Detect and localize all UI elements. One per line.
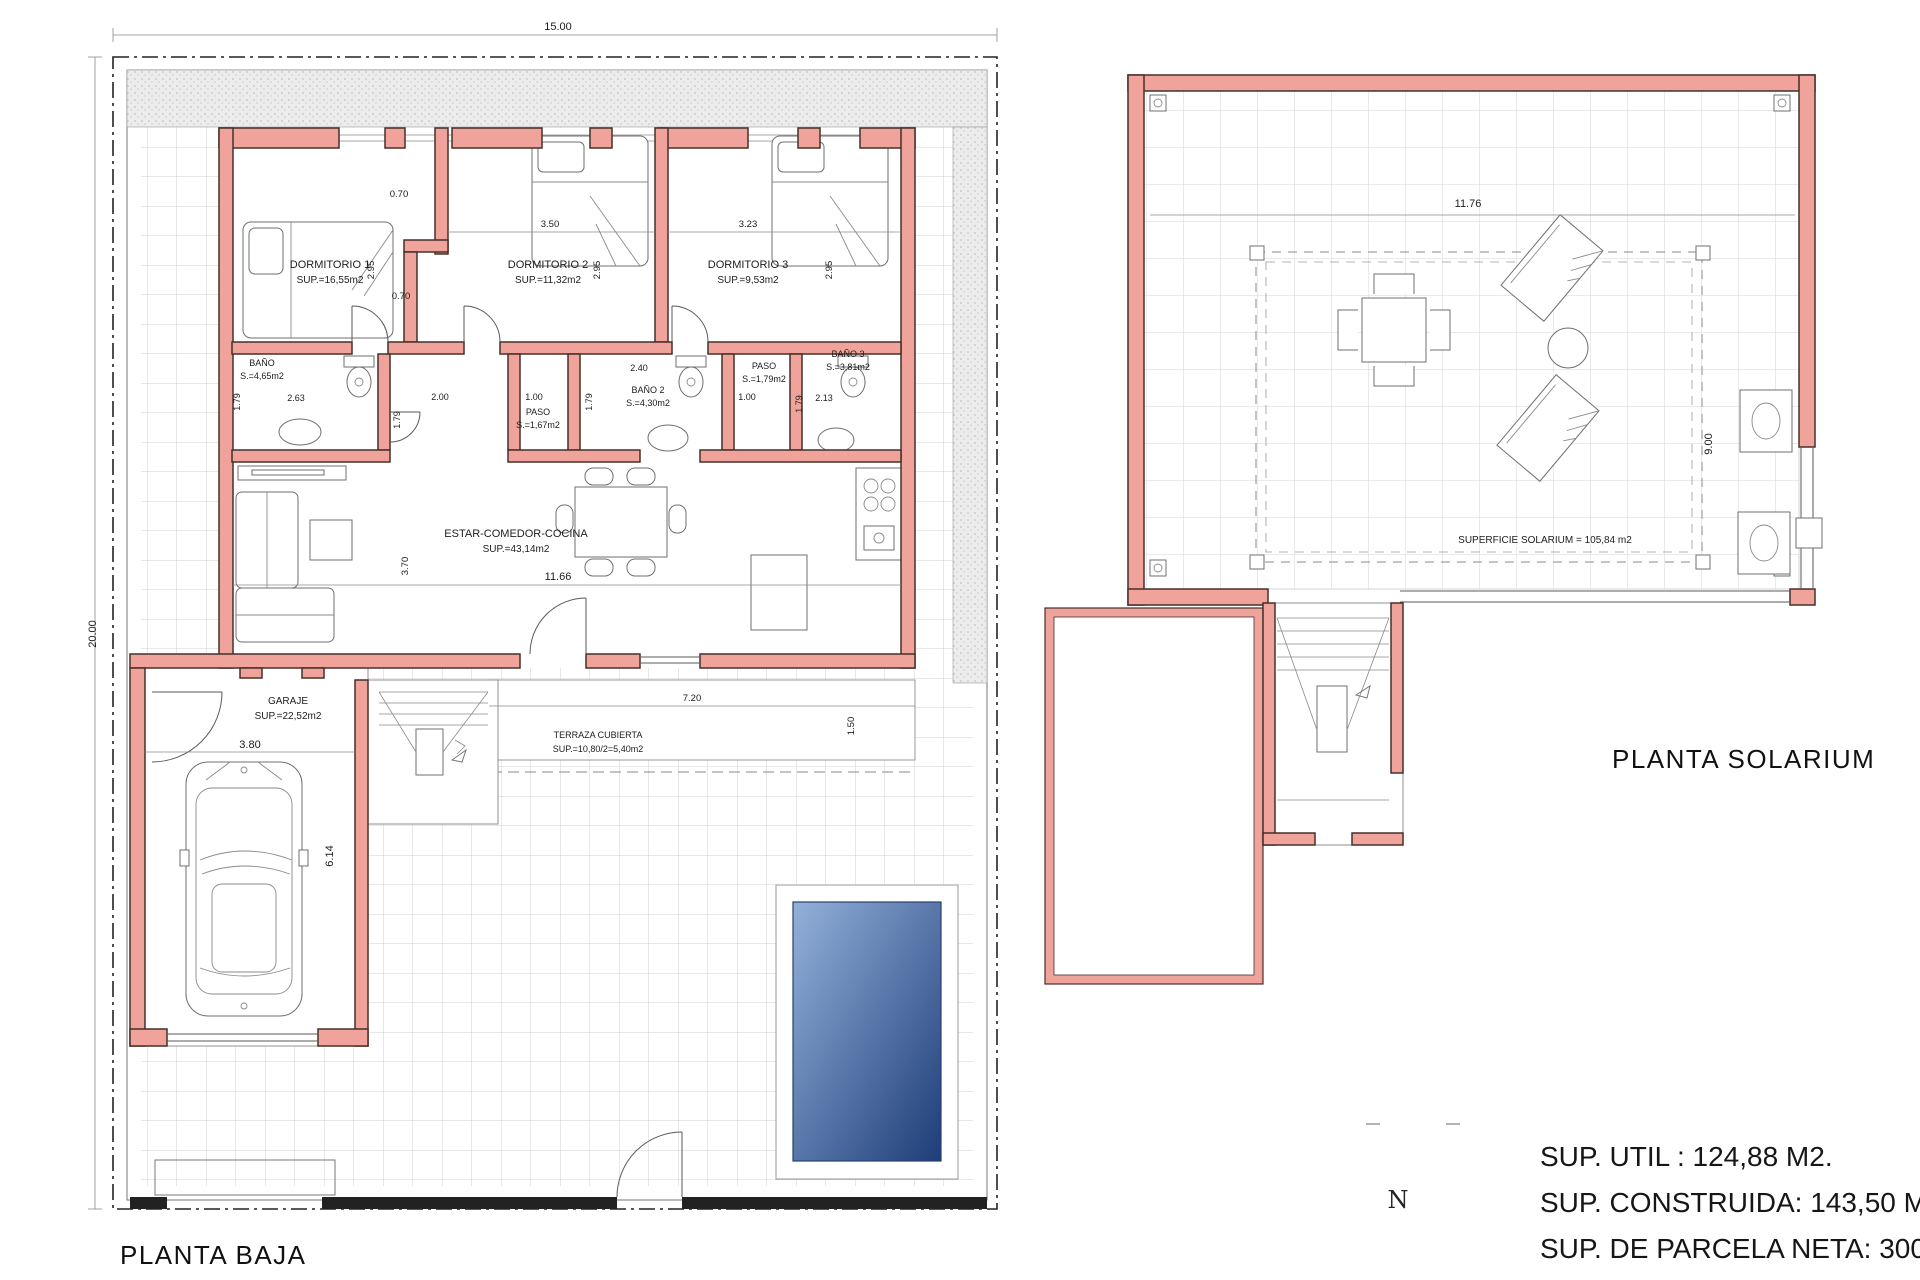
wall bbox=[1128, 75, 1144, 605]
wall bbox=[219, 128, 233, 668]
dim: 6.14 bbox=[324, 845, 336, 866]
planter-icon bbox=[1738, 512, 1790, 574]
wall bbox=[700, 654, 915, 668]
room-label: DORMITORIO 1 bbox=[290, 259, 370, 271]
dim: 2.63 bbox=[287, 393, 305, 403]
wall bbox=[708, 342, 901, 354]
wall bbox=[385, 128, 405, 148]
wall bbox=[1128, 75, 1815, 91]
dim-plot-width: 15.00 bbox=[544, 21, 572, 33]
dim: 1.79 bbox=[584, 393, 594, 411]
dim: 7.20 bbox=[683, 693, 702, 704]
plan-drawing: 15.00 20.00 DORMITORIO 1 SUP.=16,55m2 2.… bbox=[0, 0, 1920, 1280]
room-area: SUP.=16,55m2 bbox=[297, 275, 364, 286]
pool-water bbox=[793, 902, 941, 1161]
wall bbox=[568, 354, 580, 450]
swimming-pool bbox=[776, 885, 958, 1179]
kitchen-counter-icon bbox=[856, 468, 901, 560]
summary-line-util: SUP. UTIL : 124,88 M2. bbox=[1540, 1141, 1833, 1172]
room-area: SUP.=43,14m2 bbox=[483, 544, 550, 555]
room-area: S.=1,67m2 bbox=[516, 420, 560, 430]
room-label: PASO bbox=[526, 407, 550, 417]
room-label: ESTAR-COMEDOR-COCINA bbox=[444, 528, 588, 540]
planter-icon bbox=[1740, 390, 1792, 452]
wall bbox=[722, 354, 734, 450]
north-indicator: N bbox=[1366, 1124, 1460, 1214]
dim: 0.70 bbox=[390, 189, 409, 200]
stair-tower bbox=[1263, 603, 1403, 845]
dim: 2.95 bbox=[366, 261, 377, 280]
wall bbox=[130, 668, 145, 1046]
tv-icon bbox=[252, 470, 324, 475]
lower-roof-outline bbox=[1045, 608, 1263, 984]
solarium-area-label: SUPERFICIE SOLARIUM = 105,84 m2 bbox=[1458, 535, 1632, 546]
room-label: DORMITORIO 2 bbox=[508, 259, 588, 271]
side-table-icon bbox=[1548, 328, 1588, 368]
room-label: DORMITORIO 3 bbox=[708, 259, 788, 271]
wall bbox=[500, 342, 672, 354]
wall bbox=[508, 450, 640, 462]
room-label: TERRAZA CUBIERTA bbox=[554, 730, 643, 740]
planta-solarium-plan: 11.76 9.00 SUPERFICIE SOLARIUM = 105,84 … bbox=[1045, 75, 1875, 984]
street-wall bbox=[682, 1197, 987, 1209]
dim: 2.13 bbox=[815, 393, 833, 403]
wall bbox=[586, 654, 640, 668]
summary-line-parcela: SUP. DE PARCELA NETA: 300,00 M2. bbox=[1540, 1233, 1920, 1264]
dim: 3.70 bbox=[400, 557, 411, 576]
wall bbox=[1128, 589, 1268, 605]
dim: 11.66 bbox=[545, 571, 572, 583]
wall bbox=[452, 128, 542, 148]
wall bbox=[130, 654, 520, 668]
wall bbox=[232, 342, 352, 354]
dim: 2.40 bbox=[630, 363, 648, 373]
wall bbox=[219, 128, 339, 148]
dim: 3.50 bbox=[541, 219, 560, 230]
plan-title-solarium: PLANTA SOLARIUM bbox=[1612, 744, 1875, 774]
wall bbox=[655, 128, 668, 342]
wall bbox=[404, 240, 448, 252]
wall bbox=[130, 1029, 167, 1046]
wall bbox=[388, 342, 464, 354]
wall bbox=[318, 1029, 368, 1046]
room-area: SUP.=11,32m2 bbox=[515, 275, 582, 286]
wall bbox=[700, 450, 901, 462]
utility-box-icon bbox=[1796, 518, 1822, 548]
wall bbox=[590, 128, 612, 148]
setback-hatch-top bbox=[127, 70, 987, 127]
bed-icon bbox=[532, 136, 648, 266]
coffee-table-icon bbox=[310, 520, 352, 560]
room-label: BAÑO 3 bbox=[831, 349, 864, 359]
kitchen-island-icon bbox=[751, 555, 807, 630]
dim: 1.79 bbox=[794, 395, 804, 413]
wall bbox=[1790, 589, 1815, 605]
plan-title-baja: PLANTA BAJA bbox=[120, 1240, 307, 1270]
room-area: S.=3,81m2 bbox=[826, 362, 870, 372]
wall bbox=[798, 128, 820, 148]
dim: 3.23 bbox=[739, 219, 758, 230]
wall-pier bbox=[240, 668, 262, 678]
solarium-floor-grid bbox=[1144, 91, 1799, 589]
dim: 2.95 bbox=[592, 261, 603, 280]
room-area: S.=1,79m2 bbox=[742, 374, 786, 384]
sink-icon bbox=[279, 419, 321, 445]
bed-icon bbox=[772, 136, 888, 266]
surface-summary: SUP. UTIL : 124,88 M2. SUP. CONSTRUIDA: … bbox=[1540, 1141, 1920, 1264]
dim-plot-height: 20.00 bbox=[87, 620, 99, 648]
room-label: BAÑO bbox=[249, 358, 275, 368]
dim: 1.50 bbox=[846, 717, 857, 736]
street-wall bbox=[130, 1197, 167, 1209]
room-area: SUP.=9,53m2 bbox=[717, 275, 779, 286]
dim: 2.95 bbox=[824, 261, 835, 280]
floor-plan-sheet: 15.00 20.00 DORMITORIO 1 SUP.=16,55m2 2.… bbox=[0, 0, 1920, 1280]
room-area: SUP.=22,52m2 bbox=[255, 711, 322, 722]
room-area: SUP.=10,80/2=5,40m2 bbox=[553, 744, 643, 754]
wall bbox=[355, 680, 368, 1046]
wall-pier bbox=[302, 668, 324, 678]
wall bbox=[435, 128, 448, 254]
car-icon bbox=[180, 762, 308, 1016]
wall bbox=[378, 354, 390, 450]
dim: 3.80 bbox=[239, 739, 260, 751]
wall bbox=[658, 128, 748, 148]
sink-icon bbox=[818, 428, 854, 452]
dim: 1.79 bbox=[232, 393, 242, 411]
dim-solarium-height: 9.00 bbox=[1703, 433, 1715, 454]
dim-solarium-width: 11.76 bbox=[1455, 198, 1482, 210]
wall bbox=[901, 128, 915, 668]
north-letter: N bbox=[1388, 1186, 1409, 1214]
room-area: S.=4,30m2 bbox=[626, 398, 670, 408]
dim: 1.00 bbox=[738, 392, 756, 402]
sink-icon bbox=[648, 425, 688, 451]
planta-baja-plan: 15.00 20.00 DORMITORIO 1 SUP.=16,55m2 2.… bbox=[87, 21, 997, 1270]
summary-line-construida: SUP. CONSTRUIDA: 143,50 M2. bbox=[1540, 1187, 1920, 1218]
room-area: S.=4,65m2 bbox=[240, 371, 284, 381]
wall bbox=[1799, 75, 1815, 447]
street-wall bbox=[322, 1197, 617, 1209]
wall bbox=[232, 450, 390, 462]
setback-hatch-right bbox=[953, 127, 987, 683]
dim: 0.70 bbox=[392, 291, 411, 302]
dim: 1.00 bbox=[525, 392, 543, 402]
wall bbox=[508, 354, 520, 450]
room-label: PASO bbox=[752, 361, 776, 371]
room-label: GARAJE bbox=[268, 696, 308, 707]
room-label: BAÑO 2 bbox=[631, 385, 664, 395]
dim: 2.00 bbox=[431, 392, 449, 402]
dim: 1.79 bbox=[392, 411, 402, 429]
